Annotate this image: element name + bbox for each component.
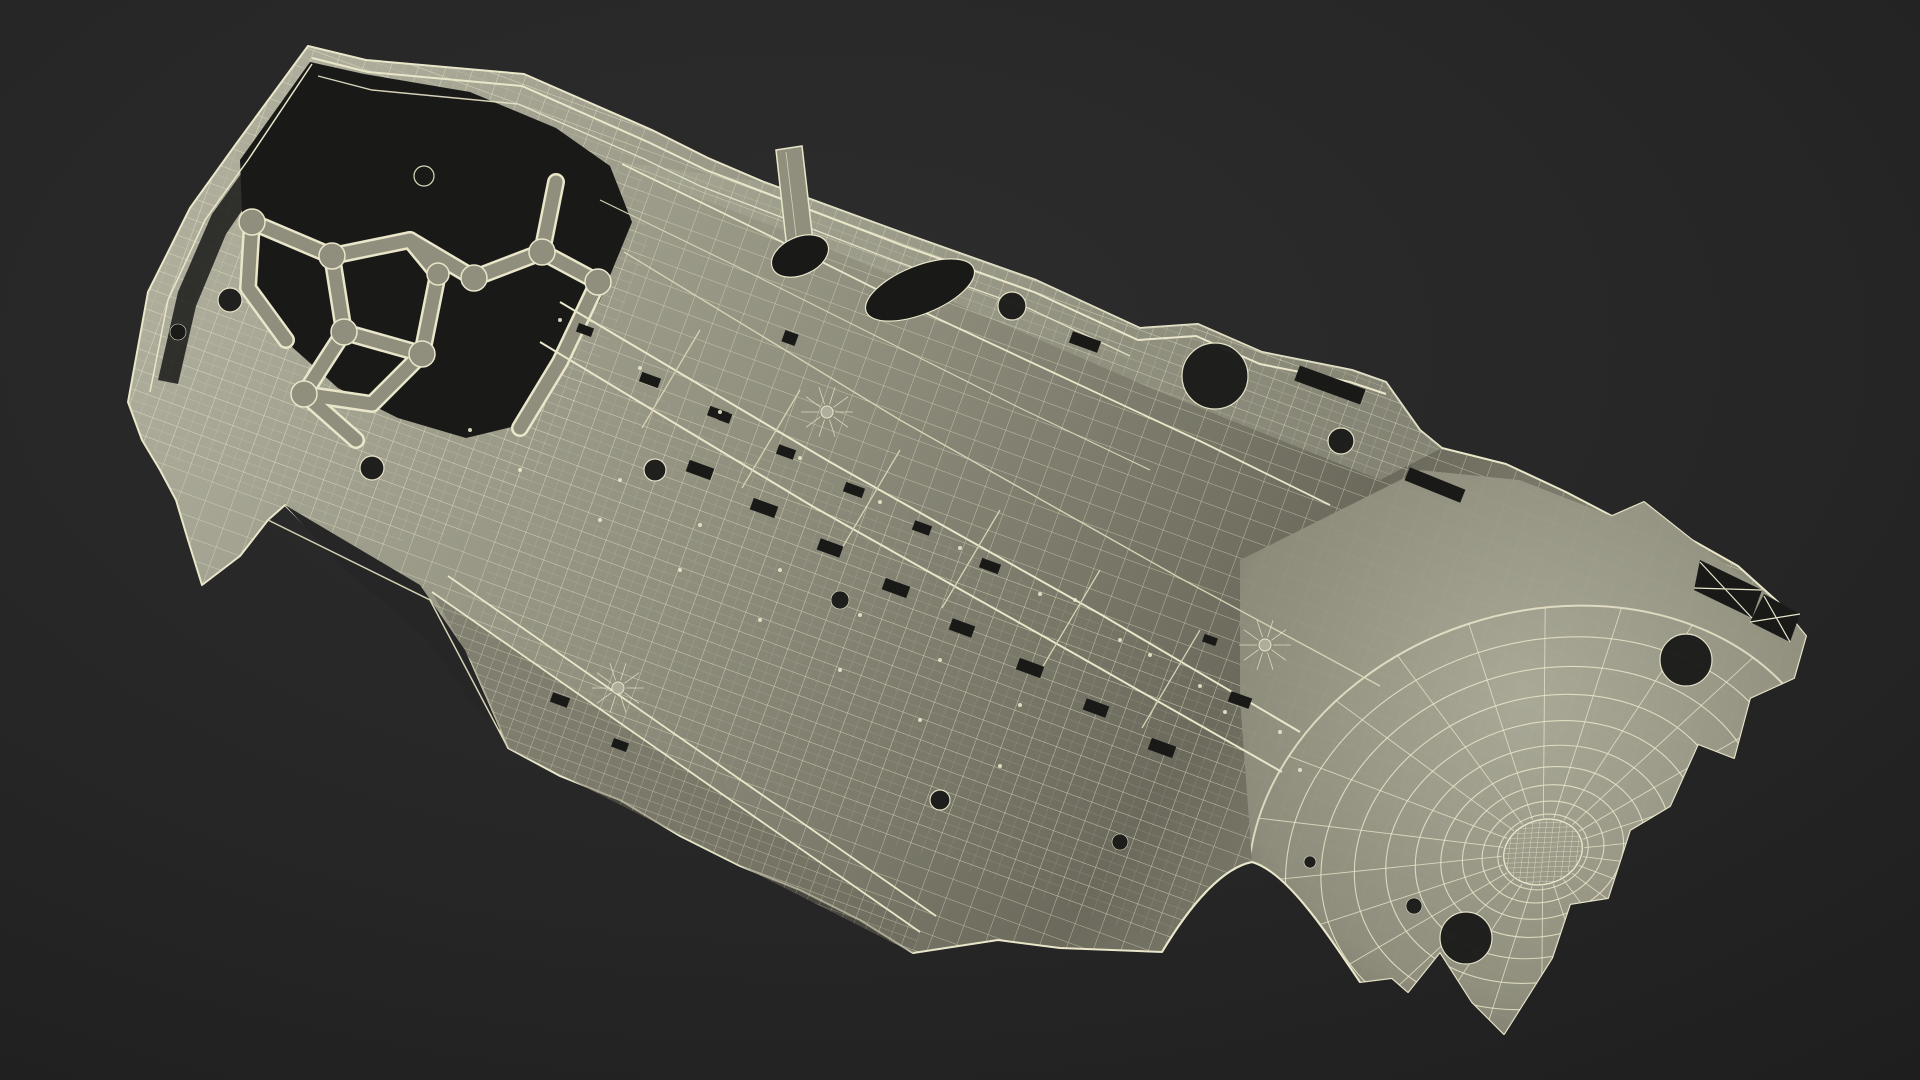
- weld-dot: [878, 500, 882, 504]
- round-cutout: [644, 459, 666, 481]
- weld-dot: [838, 668, 842, 672]
- round-cutout: [414, 166, 434, 186]
- weld-dot: [958, 546, 962, 550]
- weld-dot: [1038, 592, 1042, 596]
- weld-dot: [938, 658, 942, 662]
- weld-dot: [618, 478, 622, 482]
- weld-dot: [1018, 703, 1022, 707]
- weld-dot: [778, 568, 782, 572]
- weld-dot: [918, 718, 922, 722]
- weld-dot: [858, 613, 862, 617]
- weld-dot: [518, 468, 522, 472]
- weld-dot: [718, 410, 722, 414]
- round-cutout: [170, 324, 186, 340]
- round-cutout: [218, 288, 242, 312]
- weld-dot: [1073, 598, 1077, 602]
- round-cutout: [1440, 912, 1492, 964]
- weld-dot: [798, 456, 802, 460]
- weld-dot: [698, 523, 702, 527]
- weld-dot: [468, 428, 472, 432]
- round-cutout: [1660, 634, 1712, 686]
- round-cutout: [1304, 856, 1316, 868]
- wireframe-render: [0, 0, 1920, 1080]
- round-cutout: [360, 456, 384, 480]
- weld-dot: [598, 518, 602, 522]
- weld-dot: [1148, 653, 1152, 657]
- weld-dot: [1278, 730, 1282, 734]
- weld-dot: [558, 318, 562, 322]
- round-cutout: [1328, 428, 1354, 454]
- round-cutout: [930, 790, 950, 810]
- weld-dot: [678, 568, 682, 572]
- weld-dot: [1198, 684, 1202, 688]
- render-viewport: [0, 0, 1920, 1080]
- weld-dot: [998, 764, 1002, 768]
- round-cutout: [1406, 898, 1422, 914]
- weld-dot: [1298, 768, 1302, 772]
- round-cutout: [831, 591, 849, 609]
- weld-dot: [1223, 710, 1227, 714]
- weld-dot: [758, 618, 762, 622]
- round-cutout: [998, 292, 1026, 320]
- round-cutout: [1182, 343, 1248, 409]
- weld-dot: [1118, 638, 1122, 642]
- round-cutout: [1112, 834, 1128, 850]
- weld-dot: [638, 366, 642, 370]
